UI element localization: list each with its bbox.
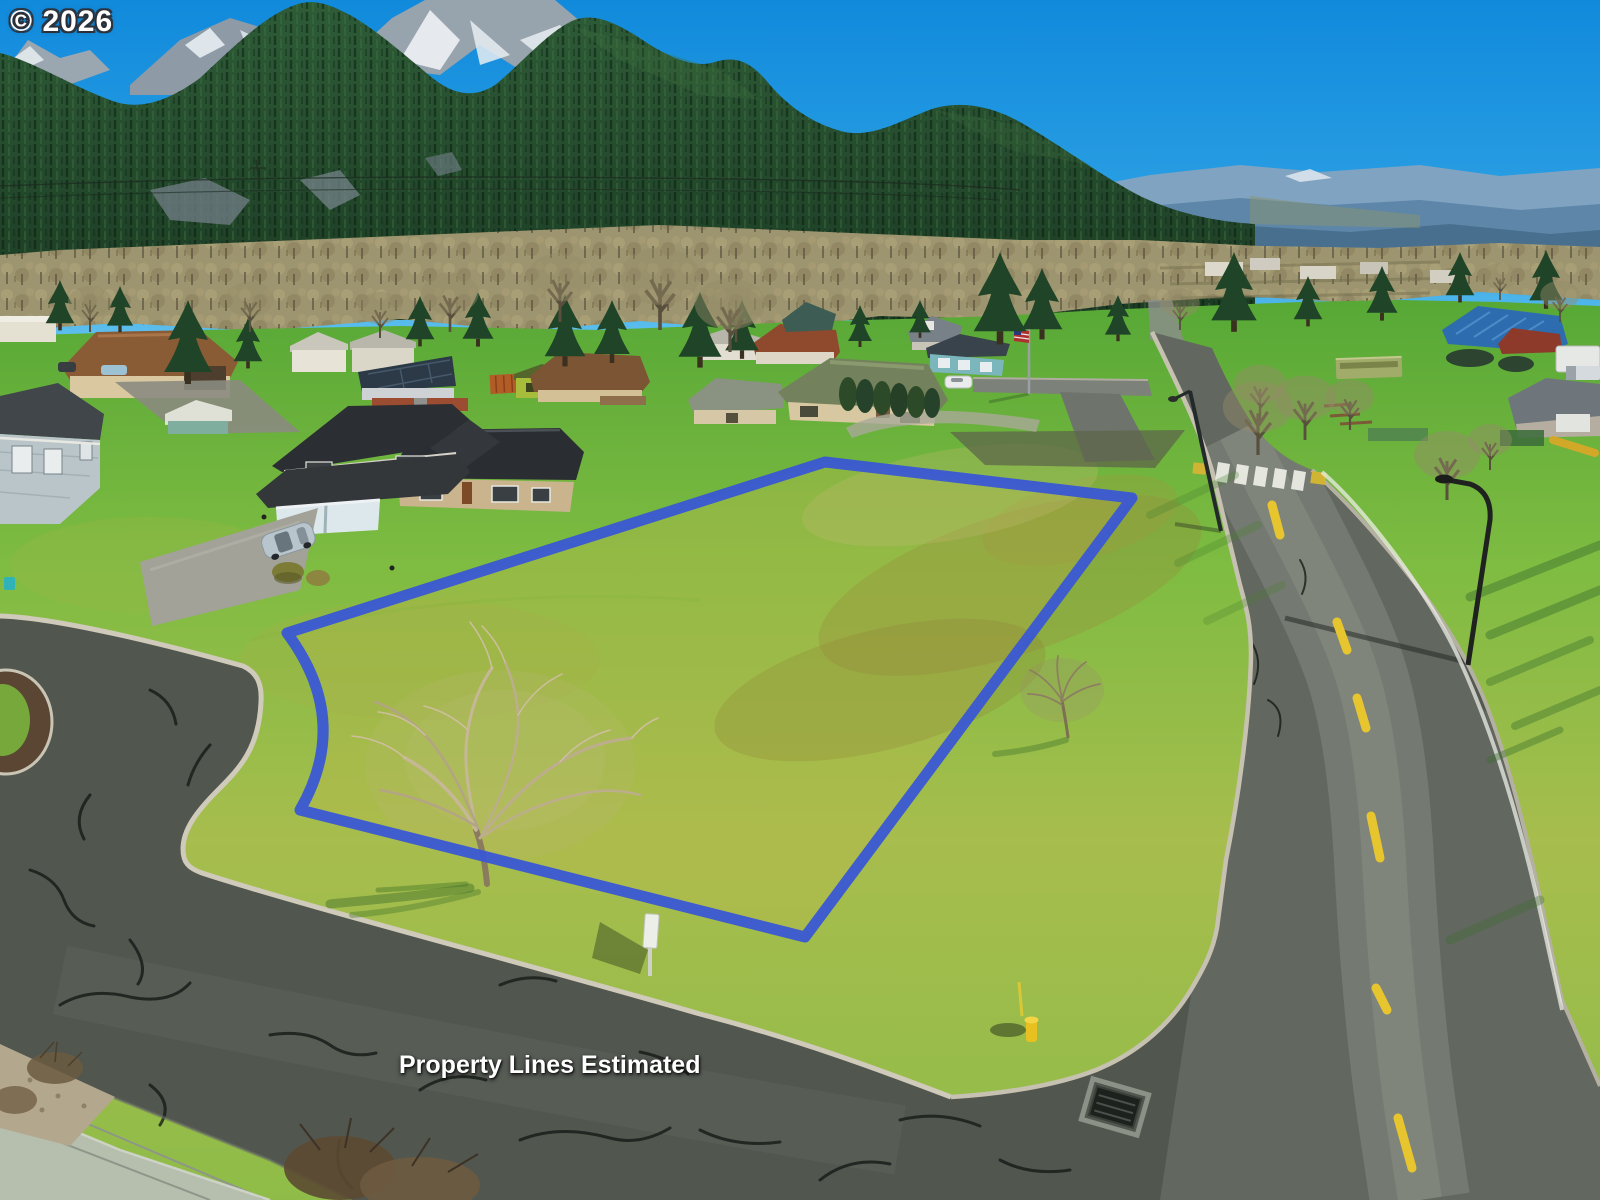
trailer-green	[1336, 357, 1403, 379]
lamp-head-icon	[1168, 396, 1178, 402]
copyright-watermark: © 2026	[10, 5, 113, 39]
lamp-head-icon	[1435, 475, 1453, 484]
aerial-lot-photo: © 2026 Property Lines Estimated	[0, 0, 1600, 1200]
utility-box	[4, 577, 15, 590]
scene-svg	[0, 0, 1600, 1200]
disclaimer-watermark: Property Lines Estimated	[399, 1051, 700, 1080]
distant-car	[945, 376, 972, 388]
